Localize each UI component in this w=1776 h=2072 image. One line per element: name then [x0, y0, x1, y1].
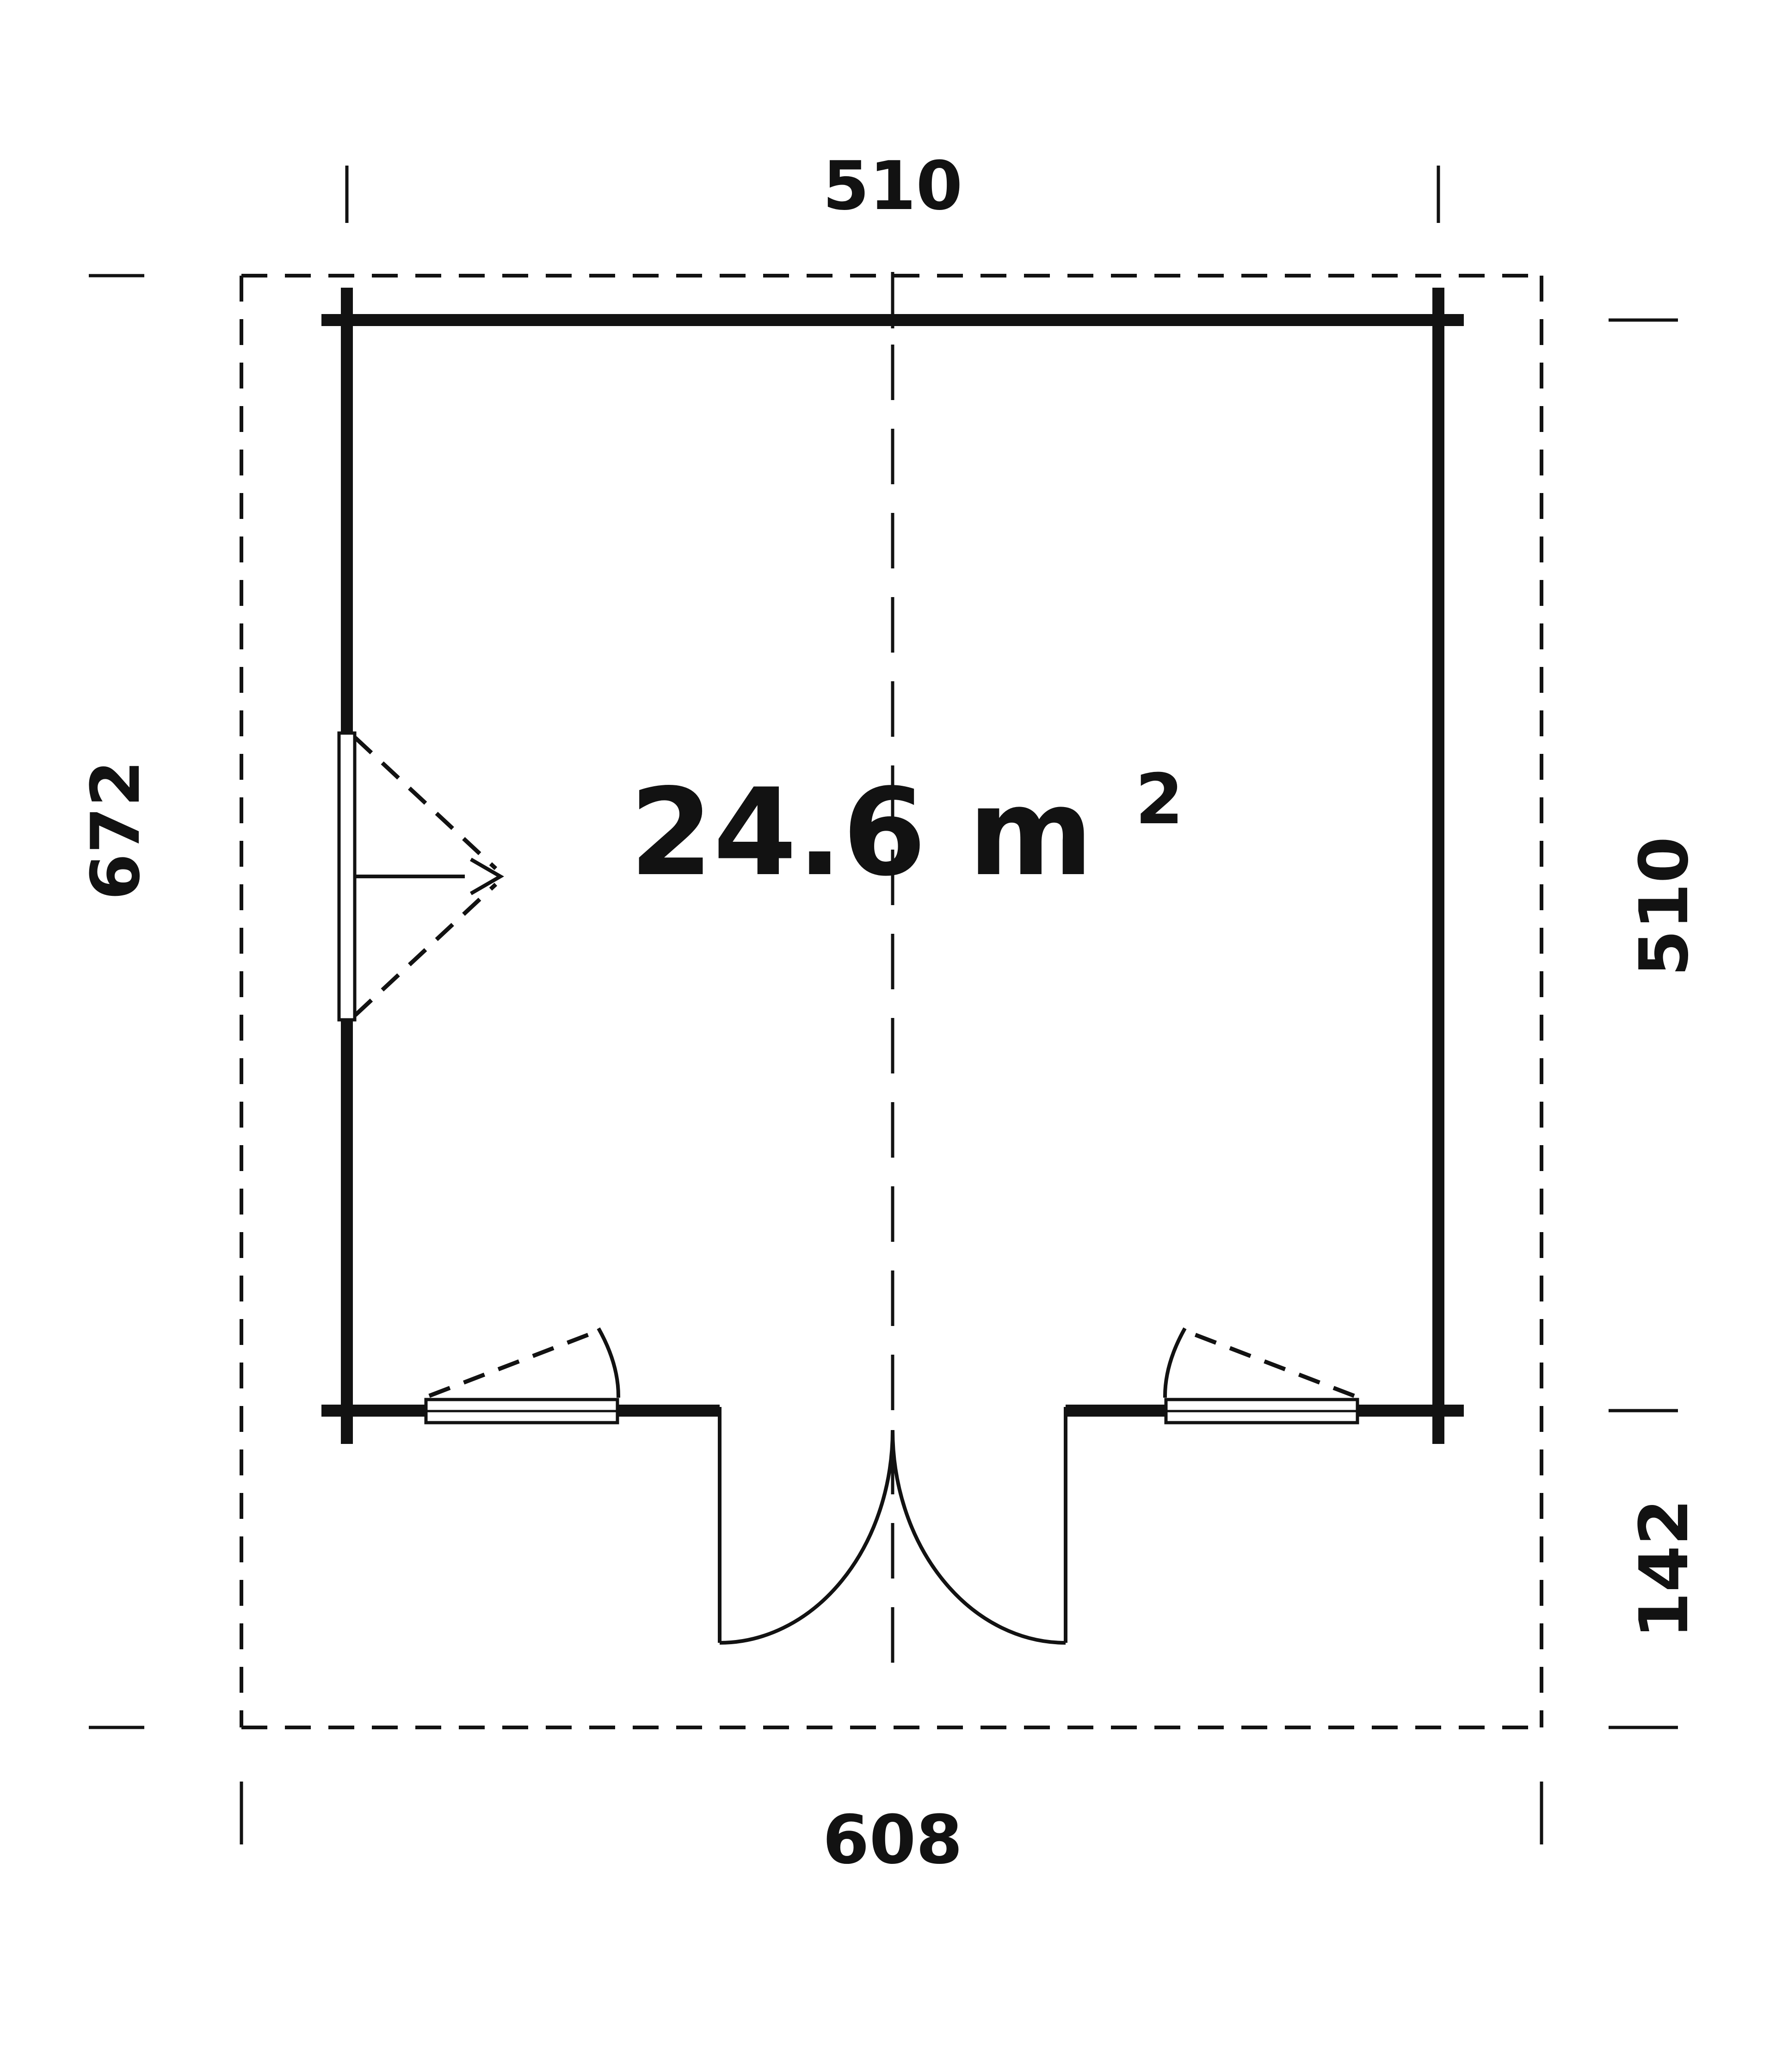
- left-window-tilt-dash-lower: [355, 884, 496, 1015]
- left-window-arrow-icon: [471, 859, 500, 894]
- floorplan-drawing: 510 672 510 142 608 24.6 m 2: [0, 0, 1776, 2072]
- floor-area-label: 24.6 m 2: [629, 759, 1184, 903]
- dimension-labels: 510 672 510 142 608: [77, 147, 1703, 1879]
- left-window-frame: [339, 733, 355, 1020]
- bottom-right-window-hinge-arc: [1165, 1328, 1185, 1398]
- dimension-right-depth-label: 510: [1625, 837, 1703, 977]
- bottom-left-window: [426, 1328, 618, 1423]
- bottom-right-window: [1165, 1328, 1357, 1423]
- bottom-left-window-tilt-dash: [429, 1333, 593, 1396]
- left-wall-window: [339, 733, 500, 1020]
- dimension-left-depth-label: 672: [77, 760, 155, 900]
- door-left-swing-arc: [720, 1430, 893, 1643]
- floorplan-page: 510 672 510 142 608 24.6 m 2: [0, 0, 1776, 2072]
- dimension-front-overhang-label: 142: [1625, 1499, 1703, 1639]
- dimension-top-width-label: 510: [823, 147, 963, 225]
- door-right-swing-arc: [893, 1430, 1066, 1643]
- left-window-tilt-dash-upper: [355, 738, 496, 869]
- bottom-right-window-tilt-dash: [1190, 1333, 1354, 1396]
- overhang-outline: [241, 276, 1542, 1727]
- floor-area-value: 24.6 m: [629, 763, 1093, 903]
- dimension-bottom-width-label: 608: [823, 1801, 963, 1879]
- bottom-left-window-hinge-arc: [598, 1328, 618, 1398]
- floor-area-superscript: 2: [1135, 759, 1184, 840]
